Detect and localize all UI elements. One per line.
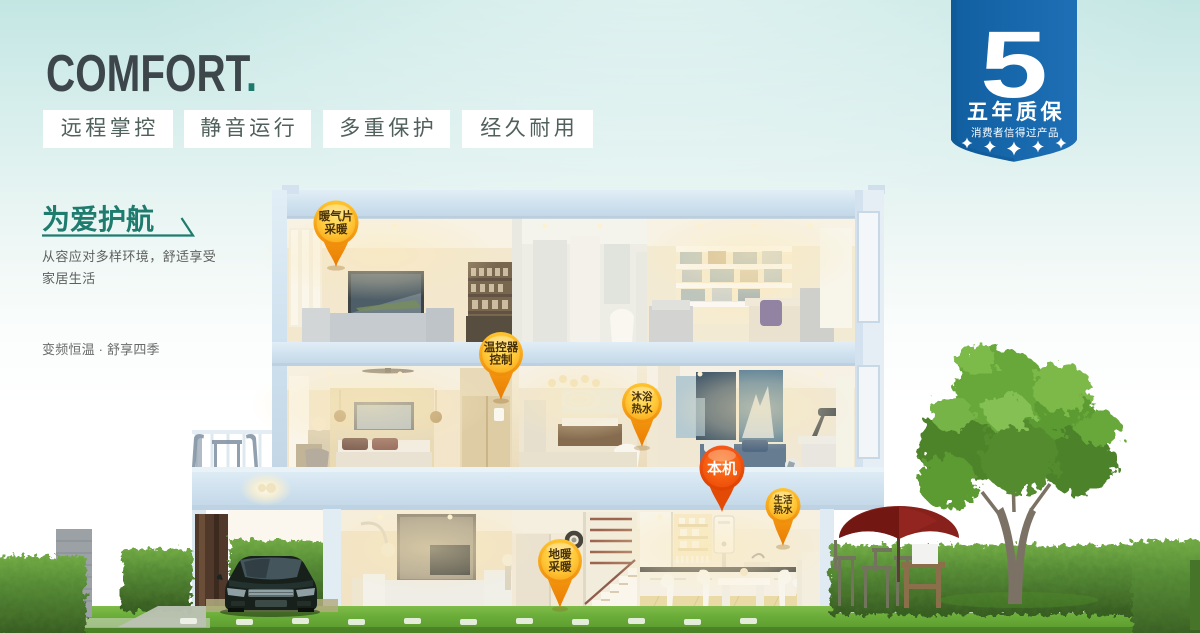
svg-text:采暖: 采暖 <box>324 222 348 236</box>
svg-text:温控器: 温控器 <box>484 340 519 354</box>
svg-text:五年质保: 五年质保 <box>967 100 1065 124</box>
svg-text:消费者信得过产品: 消费者信得过产品 <box>971 126 1059 139</box>
svg-text:热水: 热水 <box>632 402 653 415</box>
svg-text:沐浴: 沐浴 <box>632 390 653 403</box>
svg-text:本机: 本机 <box>707 460 737 478</box>
svg-text:暖气片: 暖气片 <box>319 209 354 223</box>
svg-text:控制: 控制 <box>490 353 513 367</box>
svg-text:地暖: 地暖 <box>549 547 572 561</box>
svg-text:热水: 热水 <box>773 504 793 516</box>
svg-text:采暖: 采暖 <box>548 560 572 574</box>
